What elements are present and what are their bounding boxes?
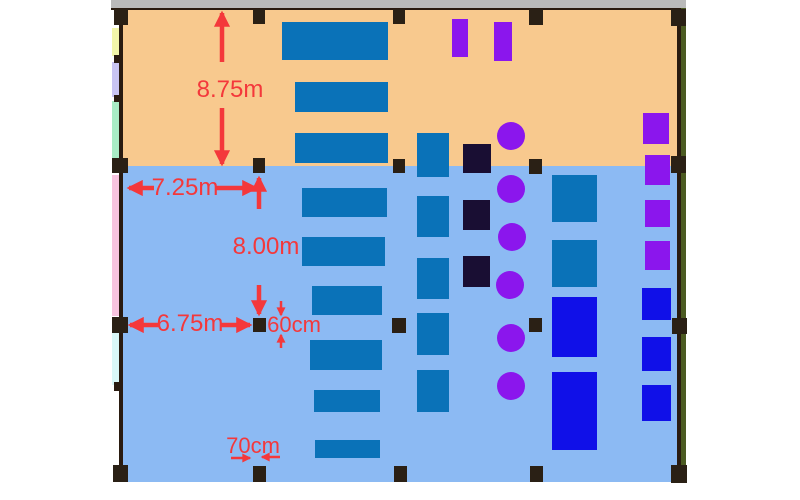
column-marker xyxy=(672,318,687,334)
column-marker xyxy=(114,9,128,25)
furniture-rect xyxy=(417,258,449,299)
left-strip-mint xyxy=(112,101,119,158)
left-strip-pink xyxy=(112,175,119,316)
furniture-rect xyxy=(552,175,597,222)
column-marker xyxy=(253,9,265,24)
column-marker xyxy=(112,317,128,333)
furniture-rect xyxy=(417,313,449,355)
furniture-rect xyxy=(315,440,380,458)
chair-circle xyxy=(498,223,526,251)
furniture-rect xyxy=(417,196,449,237)
chair-circle xyxy=(497,372,525,400)
furniture-rect xyxy=(310,340,382,370)
column-marker xyxy=(529,159,542,174)
dim-width-lower: 6.75m xyxy=(157,312,224,336)
furniture-rect xyxy=(552,240,597,287)
wall-tick xyxy=(114,55,123,63)
dim-height-upper: 8.75m xyxy=(197,78,264,102)
chair-circle xyxy=(497,324,525,352)
column-marker xyxy=(671,9,686,26)
column-marker xyxy=(253,466,266,482)
furniture-rect xyxy=(417,133,449,177)
furniture-rect xyxy=(642,337,671,371)
right-strip xyxy=(681,8,686,482)
left-strip-cyan xyxy=(112,333,119,385)
furniture-rect xyxy=(645,200,670,227)
dim-height-lower: 8.00m xyxy=(233,235,300,259)
column-marker xyxy=(671,156,686,173)
furniture-rect xyxy=(463,200,490,230)
column-marker xyxy=(112,158,128,173)
floorplan-canvas: 8.75m7.25m8.00m6.75m60cm70cm xyxy=(0,0,800,500)
dim-column-width: 70cm xyxy=(226,435,280,457)
column-marker xyxy=(253,158,265,173)
top-bar xyxy=(111,0,686,8)
furniture-rect xyxy=(302,237,385,266)
column-marker xyxy=(392,318,406,333)
furniture-rect xyxy=(645,155,670,185)
column-marker xyxy=(393,159,405,173)
chair-circle xyxy=(497,122,525,150)
chair-circle xyxy=(496,271,524,299)
furniture-rect xyxy=(642,385,671,421)
column-marker xyxy=(530,466,543,482)
furniture-rect xyxy=(314,390,380,412)
furniture-rect xyxy=(417,370,449,412)
dim-column-depth: 60cm xyxy=(267,314,321,336)
column-marker xyxy=(529,318,542,332)
furniture-rect xyxy=(302,188,387,217)
column-marker xyxy=(253,318,266,332)
furniture-rect xyxy=(552,297,597,357)
wall-tick xyxy=(114,95,123,102)
furniture-rect xyxy=(452,19,468,57)
column-marker xyxy=(671,465,687,483)
furniture-rect xyxy=(552,372,597,450)
furniture-rect xyxy=(282,22,388,60)
furniture-rect xyxy=(295,82,388,112)
column-marker xyxy=(529,9,543,25)
column-marker xyxy=(394,466,407,482)
left-wall xyxy=(119,8,123,482)
furniture-rect xyxy=(494,22,512,61)
furniture-rect xyxy=(645,241,670,270)
furniture-rect xyxy=(463,256,490,287)
furniture-rect xyxy=(643,113,669,144)
furniture-rect xyxy=(642,288,671,320)
left-strip-yellow xyxy=(112,28,119,56)
column-marker xyxy=(393,9,405,24)
chair-circle xyxy=(497,175,525,203)
left-strip-lavender xyxy=(112,62,119,97)
dim-width-upper: 7.25m xyxy=(152,176,219,200)
wall-tick xyxy=(114,382,123,391)
furniture-rect xyxy=(295,133,388,163)
column-marker xyxy=(113,465,128,482)
furniture-rect xyxy=(463,144,491,173)
furniture-rect xyxy=(312,286,382,315)
